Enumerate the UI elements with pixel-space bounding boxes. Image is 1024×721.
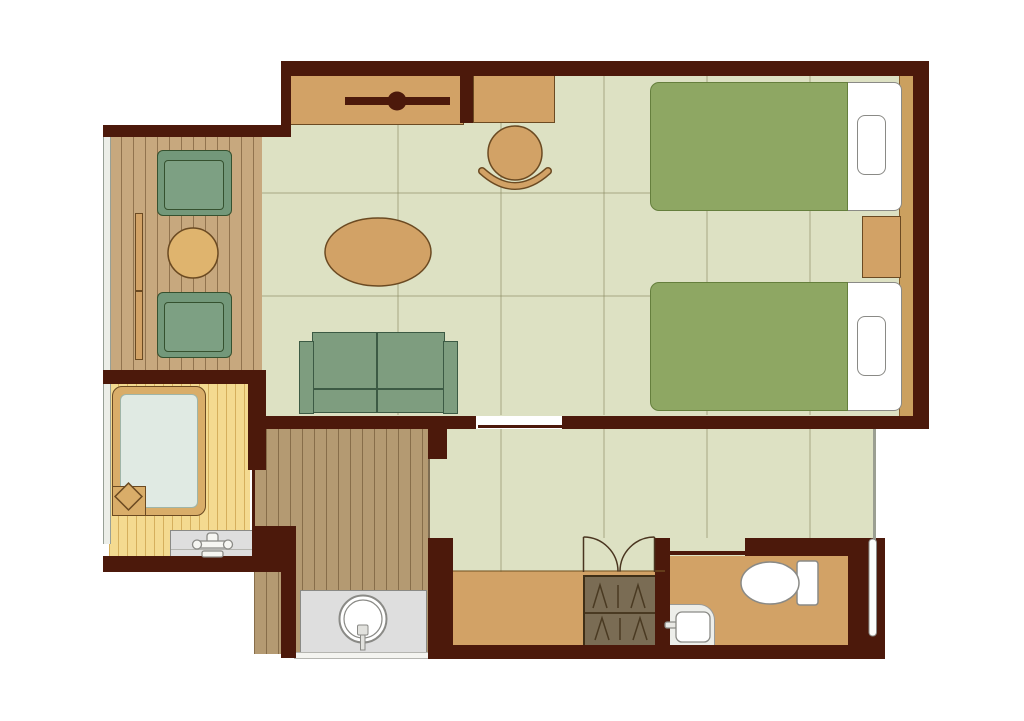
wall-bathroom-bottom — [103, 556, 296, 572]
bed-2-pillow — [857, 316, 886, 376]
chair-seat — [164, 160, 224, 210]
sofa-arm-right — [443, 341, 458, 414]
two-seat-sofa — [299, 332, 456, 414]
nightstand — [862, 216, 901, 278]
bath-counter-line — [171, 549, 254, 550]
sofa-seam-vertical — [376, 333, 378, 412]
sofa-body — [312, 332, 445, 413]
wall-tv-desk-stub — [460, 61, 473, 123]
wall-top — [281, 61, 929, 76]
balcony-railing — [103, 130, 111, 375]
wall-balcony-top — [103, 125, 287, 137]
wall-toilet-right — [848, 538, 885, 659]
floor-plan — [0, 0, 1024, 721]
wall-right — [913, 61, 929, 429]
bedroom-sliding-door — [478, 425, 562, 428]
entry-right-edge — [873, 429, 876, 540]
bed-2-duvet — [650, 282, 848, 411]
toilet-sink-nook — [670, 604, 715, 648]
grid-line — [603, 429, 605, 538]
corridor-entry-edge — [428, 459, 430, 538]
wall-toilet-left — [655, 538, 670, 648]
writing-desk — [473, 75, 555, 123]
bed-1-duvet — [650, 82, 848, 211]
balcony-chair-1 — [157, 150, 232, 216]
balcony-chair-2 — [157, 292, 232, 358]
sofa-arm-left — [299, 341, 314, 414]
grid-line — [500, 76, 502, 415]
genkan-step-line — [453, 570, 665, 572]
vanity-outer-edge — [294, 652, 432, 659]
chair-seat — [164, 302, 224, 352]
tv-console — [290, 75, 464, 125]
bathtub-step — [112, 486, 146, 516]
grid-line — [500, 429, 502, 572]
wall-corridor-entry-stub — [428, 416, 447, 459]
deck-strip-2 — [135, 291, 143, 360]
grid-line — [706, 429, 708, 538]
vanity-counter — [300, 590, 427, 654]
wall-balcony-bottom — [103, 370, 266, 384]
sofa-seam-horizontal — [313, 388, 443, 390]
bathroom-window — [103, 384, 111, 544]
bedroom-floor-left — [262, 137, 290, 416]
bed-1-pillow — [857, 115, 886, 175]
grid-line — [603, 76, 605, 415]
wall-corridor-left — [281, 556, 296, 658]
wall-entry-left-block — [428, 538, 453, 658]
deck-strip-1 — [135, 213, 143, 291]
hanger-closet — [583, 575, 661, 647]
toilet-door-line — [670, 551, 745, 555]
grid-line — [809, 429, 811, 538]
bathroom-sliding-door — [252, 470, 255, 527]
wall-bedroom-bottom-right — [562, 416, 929, 429]
